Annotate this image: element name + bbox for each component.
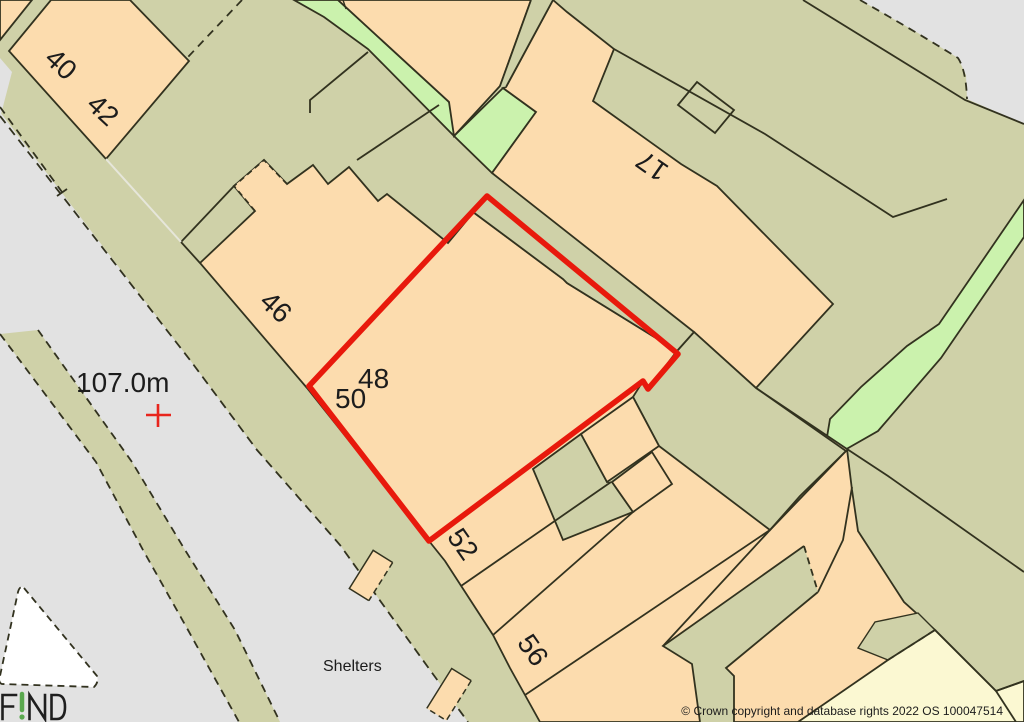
- svg-text:107.0m: 107.0m: [76, 367, 169, 398]
- svg-text:Shelters: Shelters: [323, 658, 382, 675]
- svg-text:50: 50: [335, 383, 366, 414]
- svg-text:© Crown copyright and database: © Crown copyright and database rights 20…: [681, 704, 1003, 718]
